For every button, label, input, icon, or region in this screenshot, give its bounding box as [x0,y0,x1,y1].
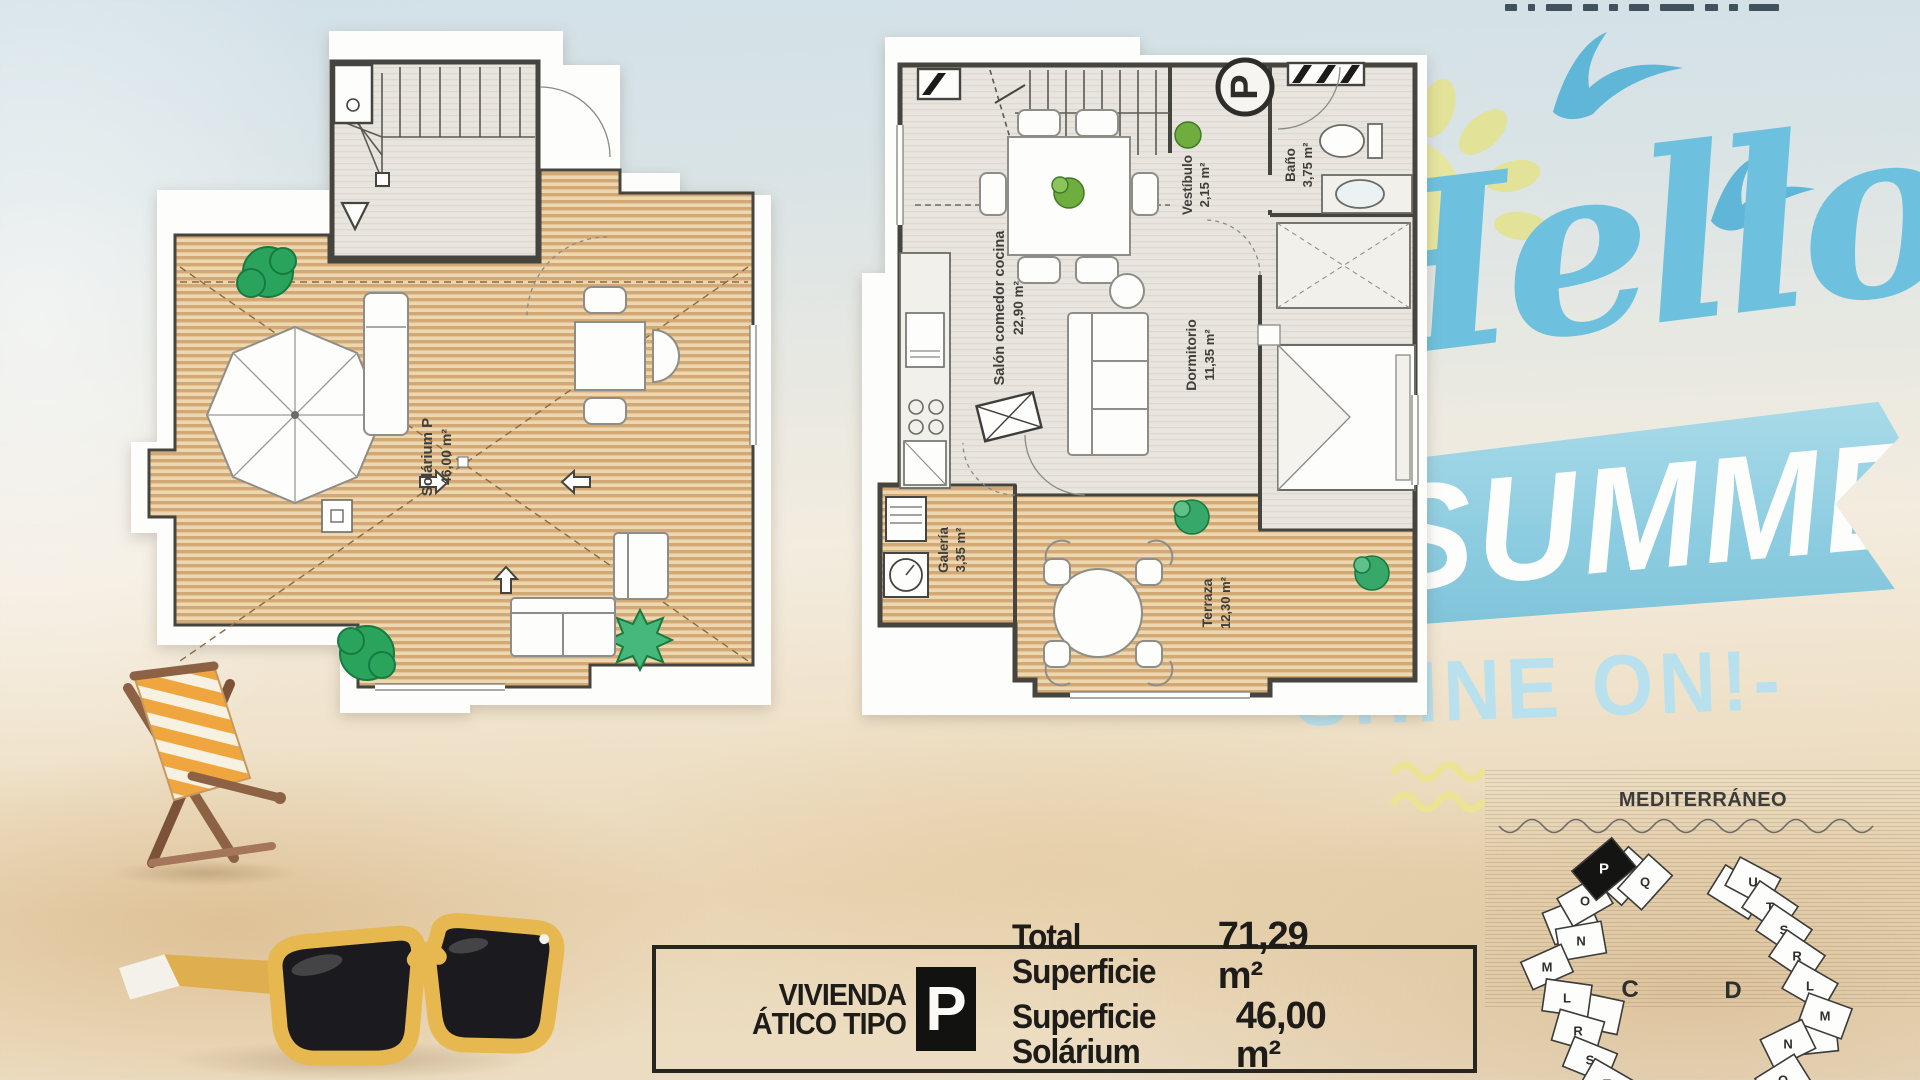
svg-text:Q: Q [1640,875,1650,890]
ac-unit [322,500,352,532]
unit-type-badge: P [1218,60,1272,114]
plant [1354,556,1389,590]
double-bed [1258,325,1415,490]
side-table [1110,274,1144,308]
site-map-title: MEDITERRÁNEO [1619,788,1787,811]
total-surface-value: 71,29 m² [1218,917,1343,997]
logo-dash [1505,4,1517,11]
room-label-salon: Salón comedor cocina [992,230,1008,386]
svg-text:O: O [1778,1073,1788,1080]
svg-text:O: O [1580,894,1590,909]
svg-text:M: M [1542,960,1553,975]
stair-newel [376,173,389,186]
sun-lounger [364,293,408,435]
room-label-vestibulo: Vestíbulo [1180,155,1195,215]
logo-dash [1729,4,1738,11]
svg-text:N: N [1576,934,1585,949]
logo-dash [1629,4,1649,11]
svg-text:T: T [1603,1077,1611,1080]
dwelling-title: VIVIENDA ÁTICO TIPO [704,980,906,1039]
room-label-dormitorio: Dormitorio [1183,319,1199,391]
sunglasses [118,908,578,1080]
vent-shaft [918,69,960,99]
shower-tray [1277,223,1410,308]
logo-dash [1583,4,1598,11]
svg-text:L: L [1563,991,1571,1006]
logo-dash [1749,4,1779,11]
summary-info-box: VIVIENDA ÁTICO TIPO P Total Superficie 7… [652,945,1477,1073]
outdoor-armchair [614,533,668,599]
room-area-salon: 22,90 m² [1011,280,1026,335]
roof-drain [458,457,468,467]
solarium-floor-plan: Solárium P 46,00 m² [120,25,780,720]
site-map: MEDITERRÁNEO Q O N M L R S T [1485,770,1920,1080]
sink [1322,175,1412,213]
outdoor-sofa [511,598,615,656]
water-heater [884,553,928,597]
room-label-terraza: Terraza [1199,578,1215,627]
logo-dash [1546,4,1572,11]
brochure-page: Hello SUMMER SHINE ON!- [0,0,1920,1080]
logo-dash [1660,4,1694,11]
solarium-surface-value: 46,00 m² [1236,997,1343,1077]
apartment-floor-plan: P [840,25,1440,730]
plant [1175,122,1201,148]
logo-dash [1528,4,1535,11]
svg-text:P: P [1224,74,1266,99]
building-c-label: C [1621,976,1638,1003]
room-label-solarium: Solárium P [419,418,436,496]
umbrella [207,327,383,503]
dwelling-line2: ÁTICO TIPO [704,1009,906,1038]
room-area-solarium: 46,00 m² [438,429,454,485]
sofa [1068,313,1148,455]
logo-dash [1609,4,1618,11]
svg-text:N: N [1783,1037,1792,1052]
svg-text:L: L [1806,979,1814,994]
star-plant [608,610,672,670]
room-area-galeria: 3,35 m² [953,527,968,572]
toilet [1320,124,1382,158]
cropped-logo-fragment [1505,4,1905,16]
vent-shaft [334,65,372,123]
room-area-terraza: 12,30 m² [1218,576,1233,629]
building-d-label: D [1724,977,1741,1004]
svg-text:M: M [1820,1009,1831,1024]
room-label-bano: Baño [1283,148,1298,182]
vent-shaft [1288,63,1364,85]
room-area-vestibulo: 2,15 m² [1197,162,1212,207]
type-badge: P [916,967,976,1051]
total-surface-label: Total Superficie [1012,920,1203,991]
room-label-galeria: Galería [936,527,951,573]
room-area-dormitorio: 11,35 m² [1202,329,1217,381]
dwelling-line1: VIVIENDA [704,980,906,1009]
plant [338,626,395,680]
surface-summary: Total Superficie 71,29 m² Superficie Sol… [1012,917,1463,1080]
plant [1174,500,1209,534]
solarium-surface-label: Superficie Solárium [1012,1000,1220,1071]
logo-dash [1705,4,1718,11]
deck-chair [82,658,322,883]
kitchen-counter [900,253,950,488]
washer [886,497,926,541]
room-area-bano: 3,75 m² [1300,142,1315,187]
svg-text:P: P [1599,861,1609,878]
